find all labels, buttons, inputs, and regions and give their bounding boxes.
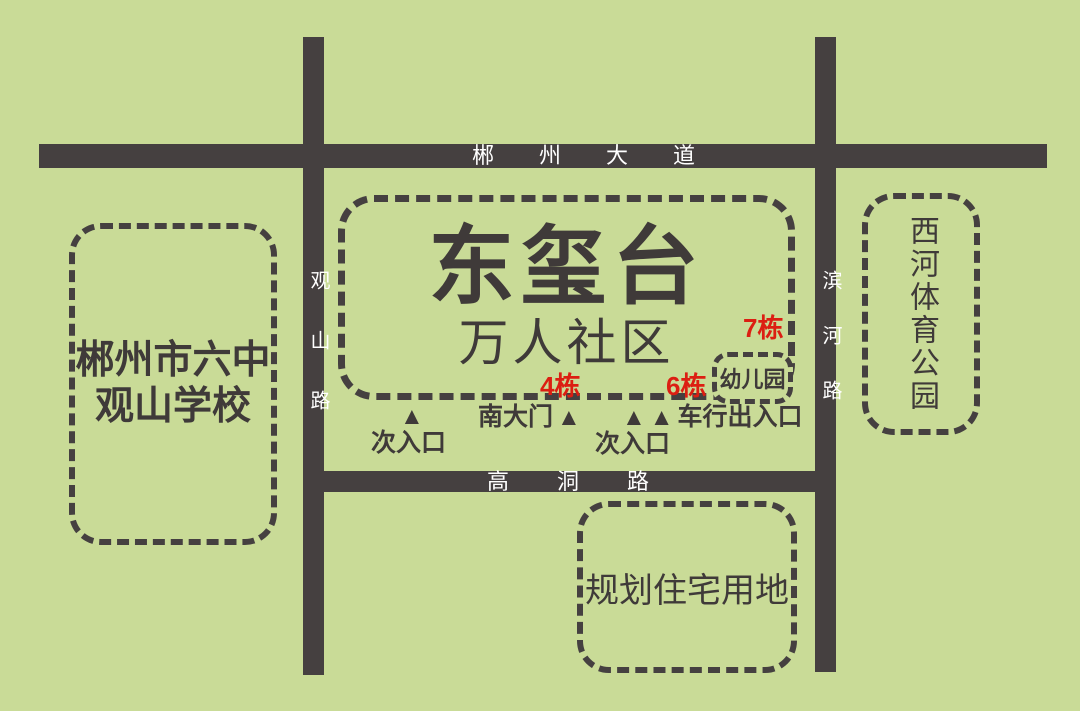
kindergarten-area: 幼儿园 [712,352,793,404]
school-name-line1: 郴州市六中 [75,338,270,384]
vehicle-entrance-group: ▲ ▲ 车行出入口 [622,405,803,430]
park-name: 西河体育公园 [899,215,943,413]
building-4-label: 4栋 [540,373,580,399]
road-label-gaodong: 高洞路 [487,471,697,493]
planned-residential-area: 规划住宅用地 [577,501,797,673]
entrance-triangle-icon: ▲ [622,406,646,430]
secondary-entrance-1-label: 次入口 [371,431,446,456]
planned-residential-name: 规划住宅用地 [585,563,789,612]
entrance-triangle-icon: ▲ [557,406,581,430]
vehicle-entrance-label: 车行出入口 [678,405,803,430]
road-label-guanshan: 观山路 [304,270,333,450]
entrance-triangle-icon: ▲ [650,406,674,430]
south-gate-label: 南大门 [478,405,553,430]
building-6-label: 6栋 [666,373,706,399]
school-name-line2: 观山学校 [75,384,270,430]
building-7-label: 7栋 [743,315,783,341]
entrance-triangle-icon: ▲ [400,405,424,429]
park-area: 西河体育公园 [862,193,980,435]
road-label-chenzhou-avenue: 郴州大道 [472,145,740,167]
south-gate-group: 南大门 ▲ [478,405,581,430]
secondary-entrance-2-label: 次入口 [595,432,670,457]
location-map: 郴州大道 高洞路 观山路 滨河路 郴州市六中 观山学校 东玺台 万人社区 西河体… [0,0,1080,711]
school-name: 郴州市六中 观山学校 [75,338,270,430]
community-title: 东玺台 [429,224,705,310]
school-area: 郴州市六中 观山学校 [69,223,277,545]
road-label-binhe: 滨河路 [816,270,845,435]
kindergarten-name: 幼儿园 [719,362,785,394]
community-subtitle: 万人社区 [459,318,675,368]
